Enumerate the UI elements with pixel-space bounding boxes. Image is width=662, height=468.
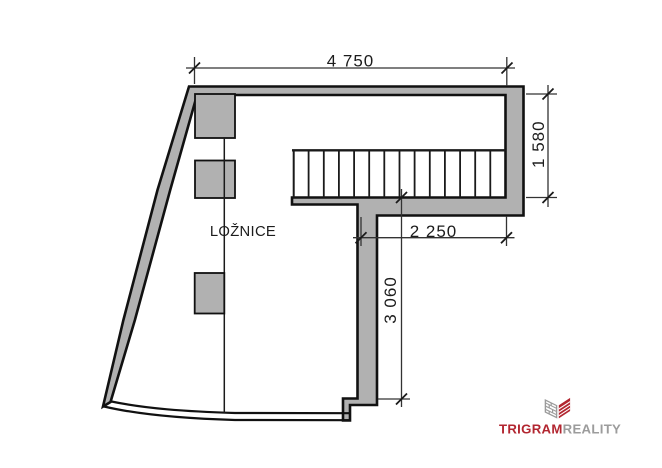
svg-text:4 750: 4 750	[327, 51, 375, 70]
svg-text:TRIGRAMREALITY: TRIGRAMREALITY	[499, 422, 621, 437]
svg-text:3 060: 3 060	[381, 276, 400, 324]
svg-text:LOŽNICE: LOŽNICE	[210, 223, 276, 240]
svg-text:2 250: 2 250	[410, 222, 458, 241]
svg-text:1 580: 1 580	[529, 120, 548, 168]
